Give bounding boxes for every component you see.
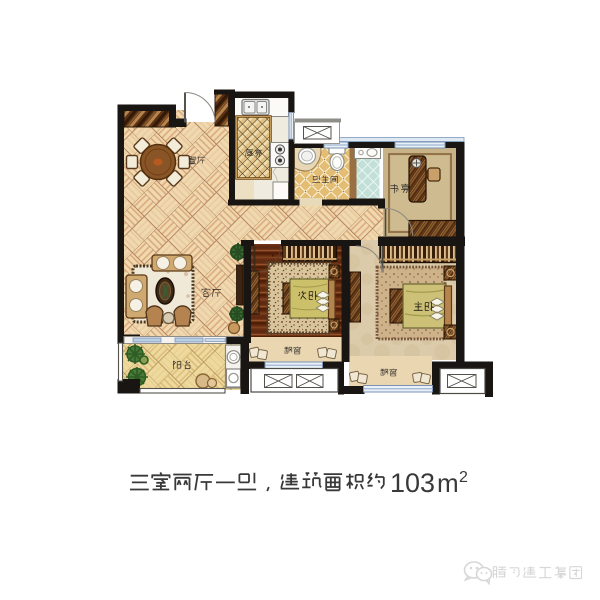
svg-text:2: 2 xyxy=(459,469,468,486)
svg-text:103: 103 xyxy=(390,468,435,498)
svg-text:m: m xyxy=(437,468,459,498)
